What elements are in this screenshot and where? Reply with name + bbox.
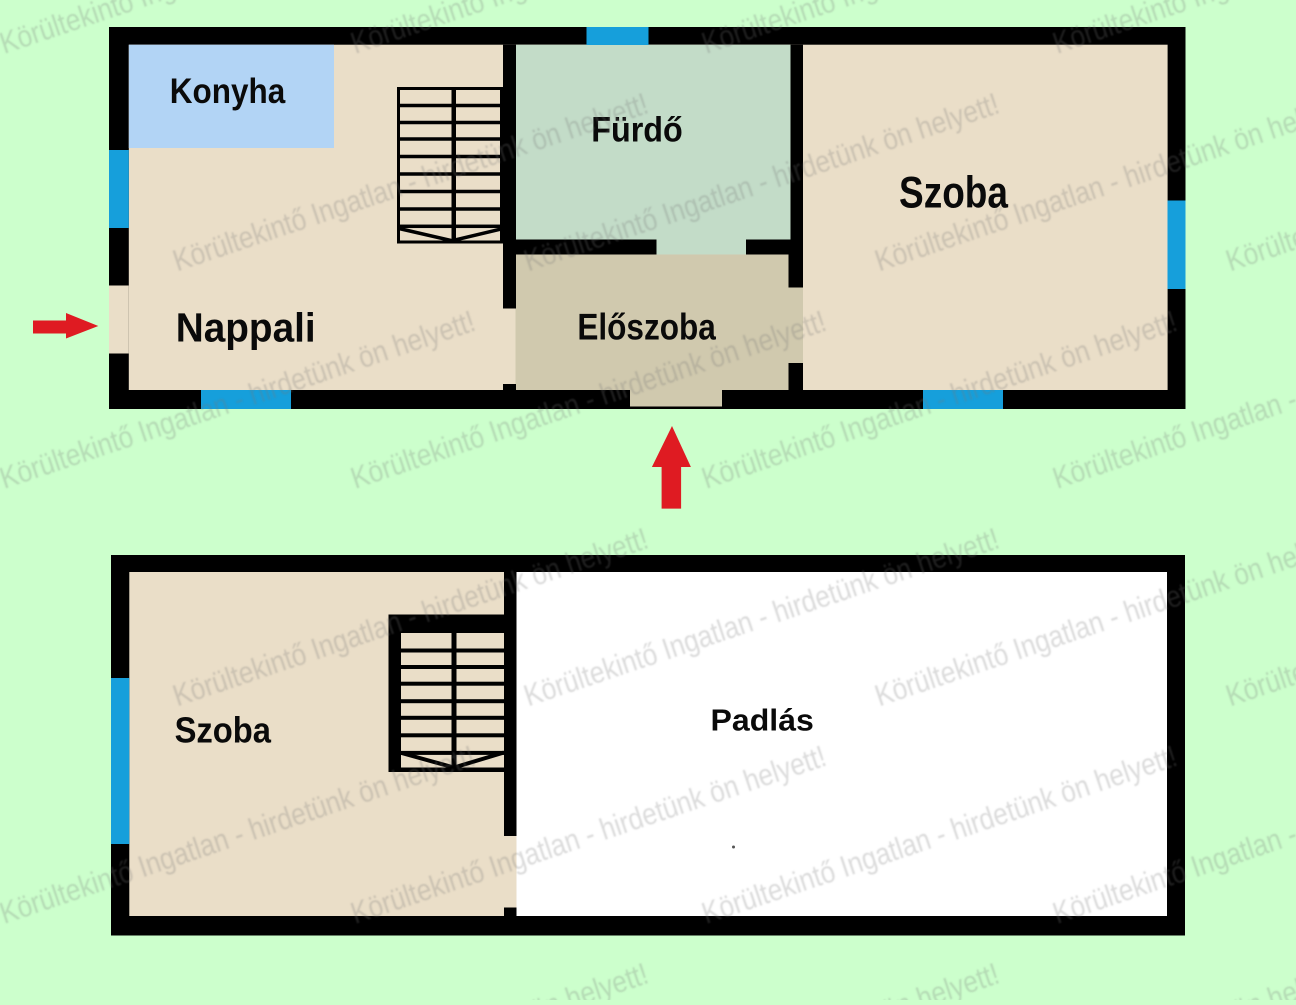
svg-text:Nappali: Nappali xyxy=(176,304,316,350)
svg-text:Padlás: Padlás xyxy=(711,702,814,737)
svg-text:Szoba: Szoba xyxy=(175,709,272,750)
svg-text:Előszoba: Előszoba xyxy=(577,306,716,347)
svg-text:Konyha: Konyha xyxy=(170,71,286,111)
